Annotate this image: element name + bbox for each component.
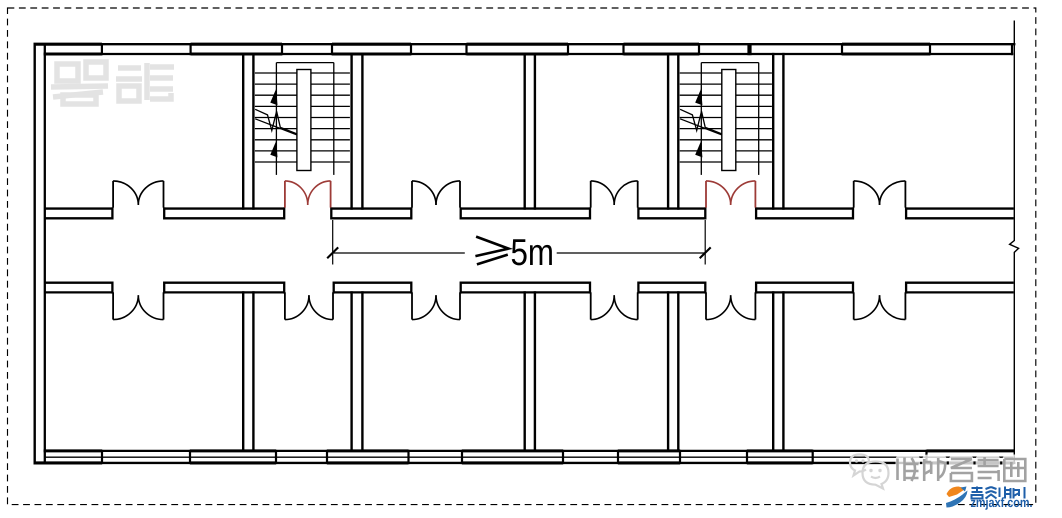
svg-text:5m: 5m: [511, 231, 555, 273]
svg-text:zmjaxf.com.: zmjaxf.com.: [971, 495, 1033, 510]
